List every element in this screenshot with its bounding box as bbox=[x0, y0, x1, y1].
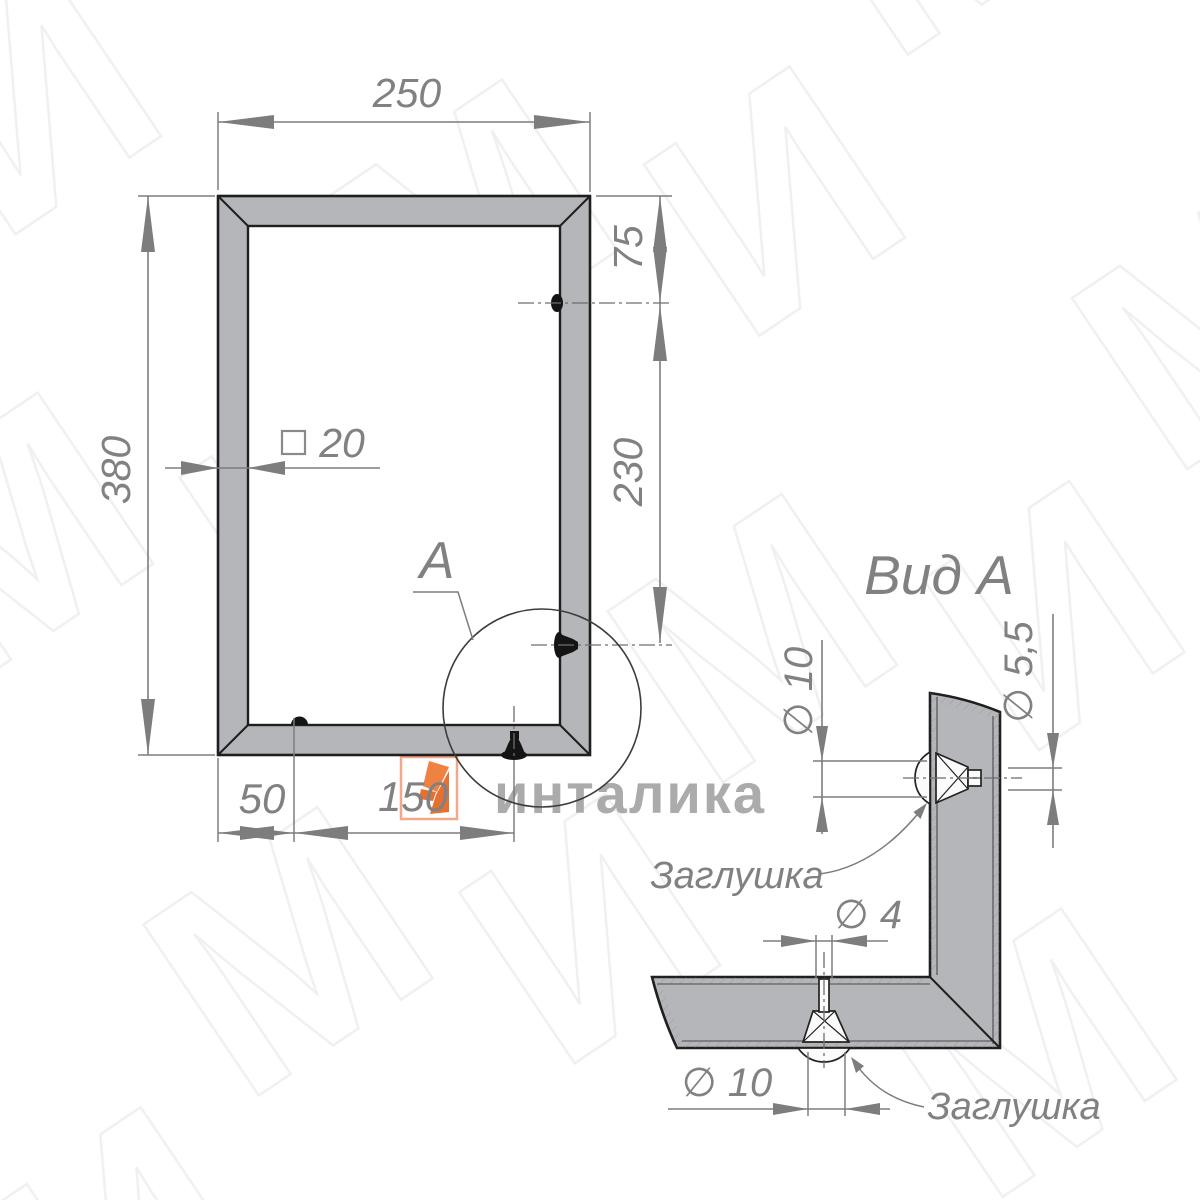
dim-side-hole-label: ∅ 5,5 bbox=[997, 620, 1041, 722]
dim-side-plug-label: ∅ 10 bbox=[777, 647, 821, 737]
dim-top-hole-offset-label: 75 bbox=[605, 225, 651, 271]
view-a-title: Вид А bbox=[864, 544, 1014, 606]
dim-height-label: 380 bbox=[93, 436, 139, 505]
brand-watermark-text: инталика bbox=[494, 762, 766, 825]
technical-drawing-canvas: М И инталика bbox=[0, 0, 1200, 1200]
frame-inner-opening bbox=[248, 226, 560, 725]
detail-a-label: А bbox=[417, 532, 455, 590]
dim-width-label: 250 bbox=[372, 70, 442, 116]
brand-watermark: инталика bbox=[401, 757, 766, 825]
dim-bottom-plug-label: ∅ 10 bbox=[682, 1061, 772, 1105]
bottom-plug-callout-label: Заглушка bbox=[927, 1086, 1100, 1128]
dim-stem-hole-label: ∅ 4 bbox=[834, 893, 902, 937]
dim-profile-square-label: 20 bbox=[318, 420, 365, 466]
side-plug-callout-label: Заглушка bbox=[650, 855, 823, 897]
watermark-pattern-layer bbox=[0, 0, 1200, 1200]
drawing-page: М И инталика bbox=[0, 0, 1200, 1200]
dim-hole-spacing-label: 230 bbox=[605, 438, 651, 508]
dim-bottom-left-label: 50 bbox=[239, 775, 286, 822]
dim-bottom-center-label: 150 bbox=[378, 773, 449, 820]
